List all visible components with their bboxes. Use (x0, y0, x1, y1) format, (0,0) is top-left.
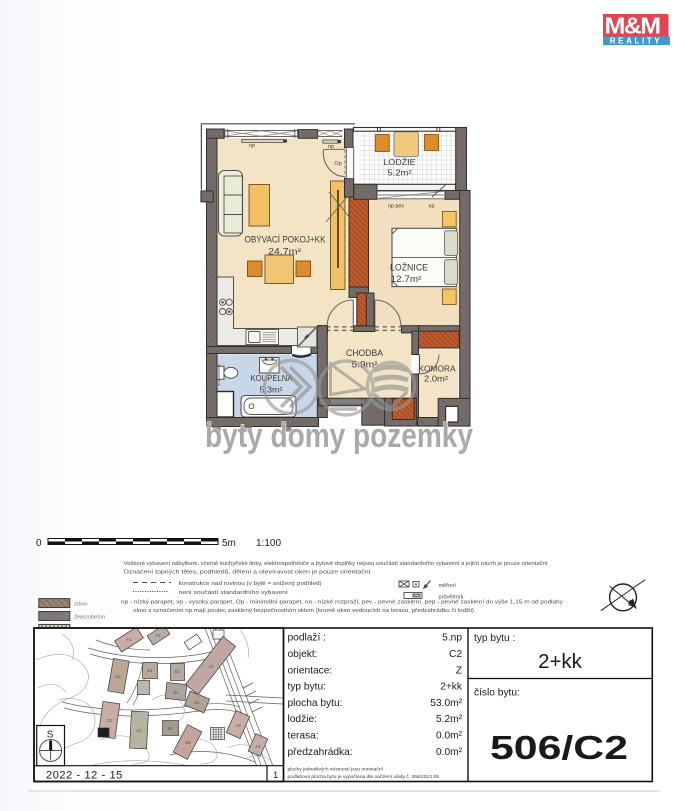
svg-text:LODŽIE: LODŽIE (384, 157, 416, 167)
svg-text:M&M: M&M (605, 13, 660, 39)
svg-text:np: np (328, 144, 334, 150)
svg-text:LOŽNICE: LOŽNICE (390, 263, 428, 273)
svg-text:C3: C3 (106, 718, 112, 723)
svg-text:REALITY: REALITY (610, 37, 662, 46)
svg-text:np pev: np pev (388, 204, 404, 210)
svg-text:terasa:: terasa: (288, 731, 319, 742)
svg-text:np: np (429, 204, 435, 210)
svg-text:C2: C2 (449, 649, 462, 660)
svg-text:Z: Z (456, 665, 462, 676)
svg-text:C4: C4 (136, 728, 142, 733)
svg-text:F1: F1 (127, 637, 133, 642)
svg-text:typ bytu:: typ bytu: (288, 682, 327, 693)
svg-text:Označení topných těles, podhle: Označení topných těles, podhledů, dělení… (124, 569, 372, 576)
svg-text:orientace:: orientace: (288, 665, 333, 676)
svg-text:plocha bytu:: plocha bytu: (288, 698, 343, 709)
svg-text:np: np (249, 143, 255, 149)
svg-text:objekt:: objekt: (288, 649, 318, 660)
svg-text:F2: F2 (156, 633, 162, 638)
svg-text:S: S (628, 598, 634, 608)
svg-text:předzahrádka:: předzahrádka: (288, 747, 353, 758)
svg-text:Veškeré vybavení nábytkem, vče: Veškeré vybavení nábytkem, včetně kuchyň… (124, 561, 548, 567)
svg-text:zdivo: zdivo (73, 602, 88, 608)
svg-text:53.0m²: 53.0m² (430, 698, 462, 709)
svg-text:506/C2: 506/C2 (490, 730, 628, 767)
svg-text:5m: 5m (222, 538, 236, 549)
svg-text:CHODBA: CHODBA (346, 348, 383, 358)
svg-text:2.0m²: 2.0m² (424, 375, 448, 384)
svg-text:byty domy pozemky: byty domy pozemky (205, 417, 473, 455)
svg-text:číslo bytu:: číslo bytu: (474, 688, 520, 699)
svg-text:0.0m²: 0.0m² (436, 731, 463, 742)
svg-text:A4: A4 (208, 664, 214, 669)
svg-text:A2: A2 (255, 744, 261, 749)
svg-text:A3: A3 (235, 723, 241, 728)
svg-text:E2: E2 (173, 690, 179, 695)
svg-text:OBÝVACÍ POKOJ+KK: OBÝVACÍ POKOJ+KK (245, 235, 326, 245)
svg-text:np - nízký parapet, vp - vysok: np - nízký parapet, vp - vysoký parapet,… (121, 600, 563, 606)
svg-text:typ bytu :: typ bytu : (474, 633, 515, 644)
svg-text:podlahová plocha bytu je vypoč: podlahová plocha bytu je vypočtena dle n… (288, 774, 440, 780)
svg-text:B1: B1 (167, 726, 173, 731)
svg-text:5.np: 5.np (442, 633, 462, 644)
svg-text:0: 0 (36, 538, 42, 549)
svg-text:D1: D1 (147, 668, 153, 673)
svg-text:E3: E3 (174, 669, 180, 674)
svg-text:KOMORA: KOMORA (419, 364, 456, 374)
svg-text:průvětrník: průvětrník (439, 594, 464, 601)
svg-text:měření: měření (439, 583, 457, 589)
svg-text:1:100: 1:100 (256, 538, 281, 549)
svg-text:plochy jednotlivých místností: plochy jednotlivých místností jsou orien… (288, 767, 384, 773)
svg-text:KOUPELNA: KOUPELNA (251, 374, 294, 383)
svg-text:konstrukce nad rovinou (v bytě: konstrukce nad rovinou (v bytě = snížený… (179, 581, 322, 587)
svg-text:B2: B2 (185, 740, 191, 745)
svg-text:D2: D2 (115, 674, 121, 679)
svg-text:není součástí standardního vyb: není součástí standardního vybavení (179, 590, 289, 596)
svg-text:Op: Op (334, 161, 341, 167)
svg-text:0.0m²: 0.0m² (436, 747, 463, 758)
svg-text:2+kk: 2+kk (538, 650, 583, 673)
svg-text:E1: E1 (194, 700, 200, 705)
svg-text:24.7m²: 24.7m² (268, 247, 301, 257)
svg-text:2+kk: 2+kk (440, 682, 463, 693)
svg-text:5.2m²: 5.2m² (436, 714, 463, 725)
svg-text:M&M FINANCE: M&M FINANCE (673, 13, 677, 35)
svg-text:12.7m²: 12.7m² (391, 274, 422, 284)
svg-text:železobeton: železobeton (73, 615, 105, 621)
svg-text:okno s označením np mají poute: okno s označením np mají poutec zasklený… (133, 608, 474, 614)
svg-text:S: S (47, 730, 54, 741)
svg-text:1: 1 (273, 770, 278, 781)
svg-text:5.2m²: 5.2m² (388, 169, 412, 178)
svg-text:podlaží :: podlaží : (288, 633, 327, 644)
svg-text:lodžie:: lodžie: (288, 714, 317, 725)
svg-text:2022 - 12 - 15: 2022 - 12 - 15 (46, 769, 123, 781)
